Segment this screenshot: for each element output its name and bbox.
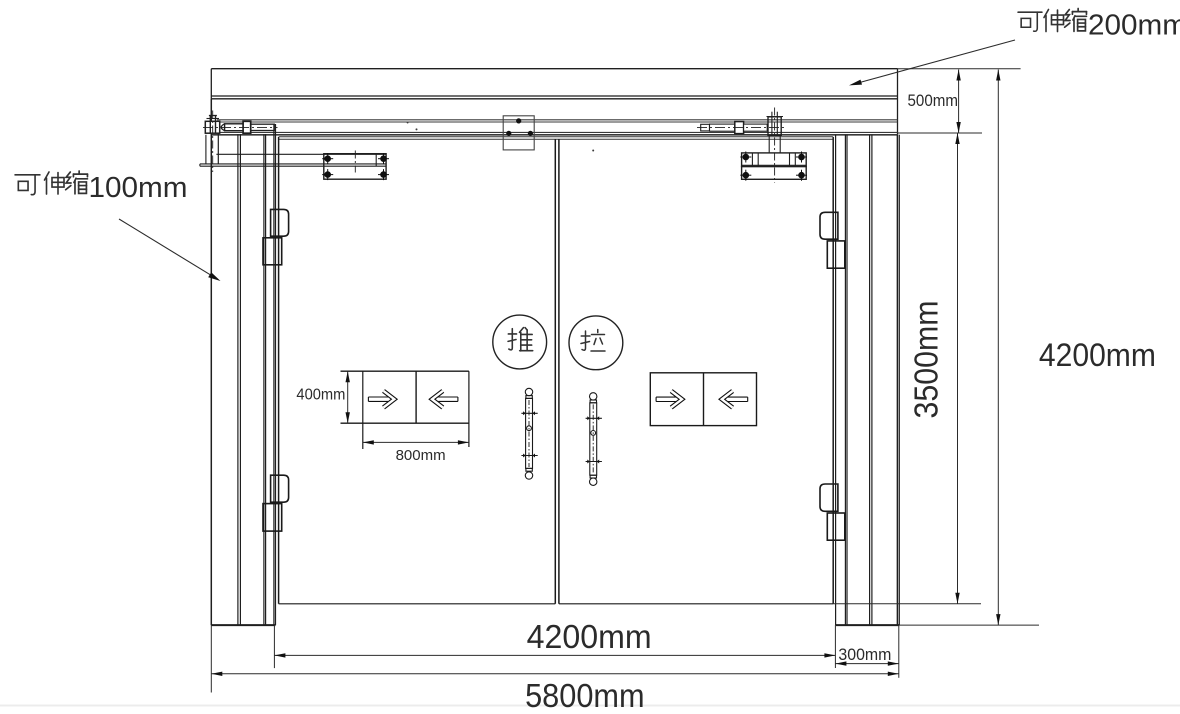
svg-text:200mm: 200mm <box>1088 10 1180 42</box>
svg-text:3500mm: 3500mm <box>908 301 945 419</box>
svg-text:300mm: 300mm <box>838 645 891 664</box>
svg-text:5800mm: 5800mm <box>525 677 645 714</box>
svg-text:4200mm: 4200mm <box>1039 337 1156 373</box>
svg-text:800mm: 800mm <box>396 447 446 464</box>
svg-text:500mm: 500mm <box>908 92 959 110</box>
svg-text:100mm: 100mm <box>89 172 188 204</box>
svg-text:4200mm: 4200mm <box>527 618 652 655</box>
svg-text:400mm: 400mm <box>296 387 345 404</box>
